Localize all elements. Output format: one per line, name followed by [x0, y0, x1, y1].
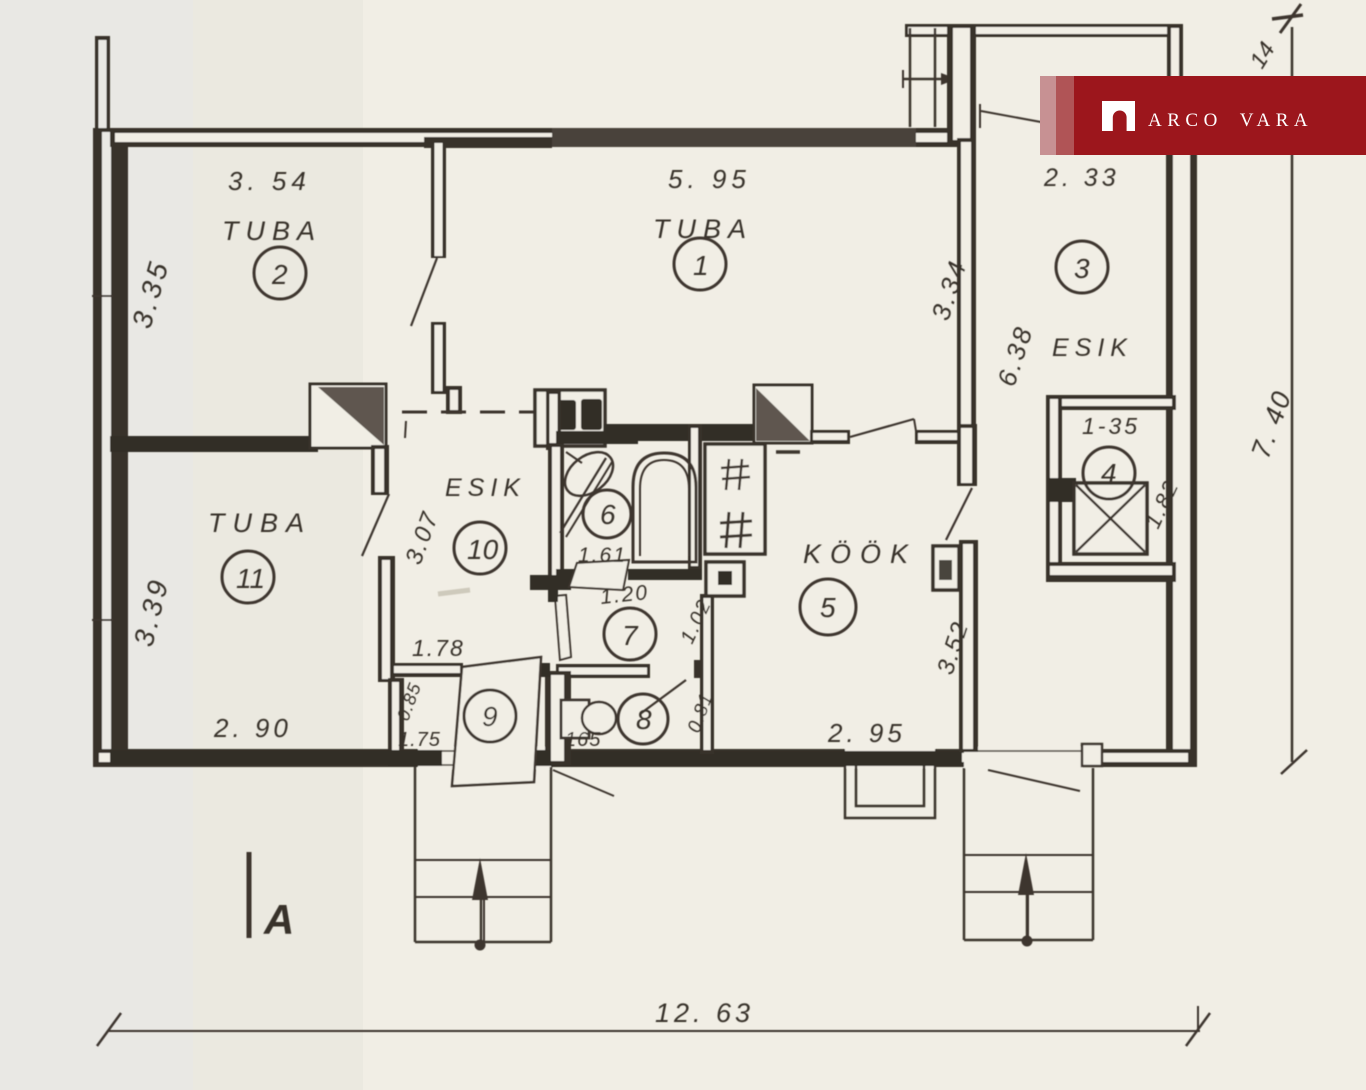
- svg-text:ESIK: ESIK: [445, 474, 526, 502]
- svg-text:7. 40: 7. 40: [1245, 386, 1297, 462]
- svg-text:9: 9: [482, 701, 498, 732]
- svg-text:1.75: 1.75: [398, 729, 441, 751]
- svg-text:1.61: 1.61: [578, 544, 627, 567]
- svg-text:11: 11: [236, 563, 265, 594]
- svg-text:1.78: 1.78: [412, 635, 465, 661]
- svg-text:3.35: 3.35: [126, 255, 175, 331]
- svg-text:TUBA: TUBA: [208, 508, 312, 538]
- svg-text:ESIK: ESIK: [1052, 334, 1133, 362]
- svg-text:10: 10: [467, 534, 499, 565]
- svg-text:3.39: 3.39: [128, 574, 175, 650]
- svg-text:2. 95: 2. 95: [827, 718, 906, 748]
- svg-text:1.20: 1.20: [599, 581, 650, 609]
- svg-text:2. 33: 2. 33: [1043, 164, 1120, 192]
- svg-text:8: 8: [636, 704, 652, 735]
- svg-text:6: 6: [600, 499, 616, 530]
- svg-text:6.38: 6.38: [991, 321, 1039, 390]
- svg-text:1: 1: [693, 250, 709, 281]
- svg-text:3. 54: 3. 54: [228, 166, 311, 196]
- svg-text:4: 4: [1101, 458, 1117, 489]
- svg-text:5. 95: 5. 95: [668, 164, 751, 194]
- svg-text:5: 5: [820, 592, 836, 623]
- svg-text:7: 7: [622, 620, 639, 651]
- svg-text:165: 165: [565, 729, 601, 751]
- svg-text:3.07: 3.07: [400, 507, 444, 568]
- svg-text:14: 14: [1244, 37, 1280, 72]
- svg-text:12. 63: 12. 63: [655, 998, 754, 1028]
- svg-text:2: 2: [271, 259, 288, 290]
- svg-text:3: 3: [1074, 253, 1090, 284]
- svg-text:2. 90: 2. 90: [213, 713, 292, 743]
- svg-text:TUBA: TUBA: [222, 216, 322, 246]
- svg-text:KÖÖK: KÖÖK: [803, 539, 917, 569]
- svg-text:1-35: 1-35: [1082, 413, 1140, 439]
- svg-text:A: A: [263, 896, 294, 943]
